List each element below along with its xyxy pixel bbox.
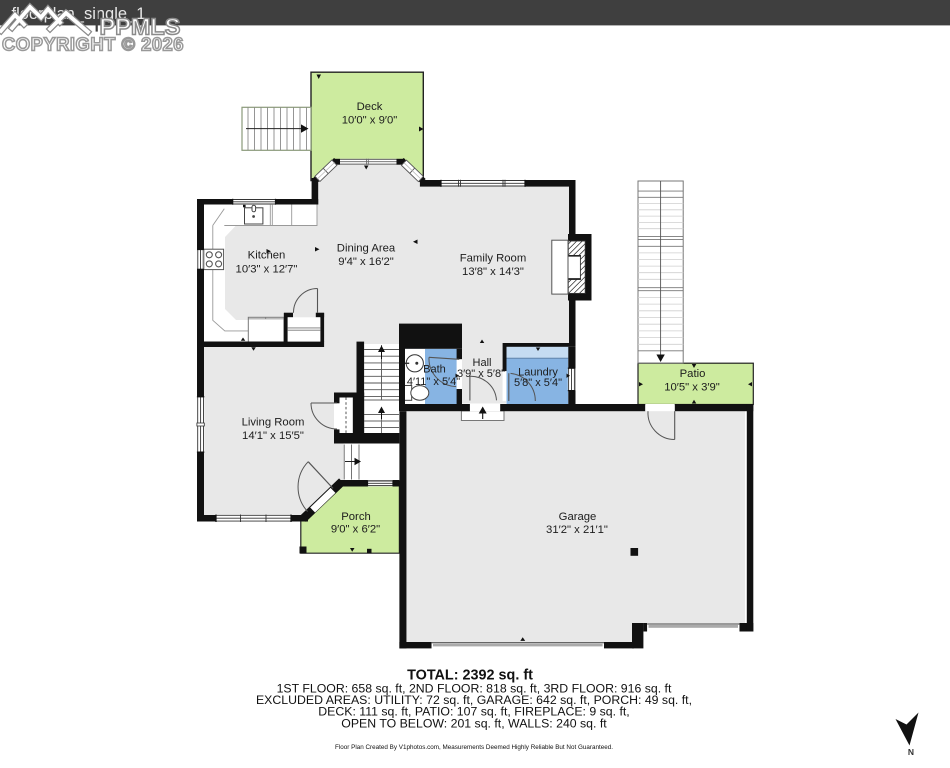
svg-text:Dining Area: Dining Area (337, 243, 396, 255)
svg-text:COPYRIGHT © 2026: COPYRIGHT © 2026 (2, 33, 184, 54)
svg-text:14′1" x 15′5": 14′1" x 15′5" (242, 430, 304, 442)
svg-text:4′11" x 5′4": 4′11" x 5′4" (407, 376, 460, 388)
svg-text:Garage: Garage (559, 511, 597, 523)
svg-text:9′0" x 6′2": 9′0" x 6′2" (331, 524, 380, 536)
svg-text:Porch: Porch (341, 511, 371, 523)
svg-text:Bath: Bath (423, 364, 446, 376)
svg-text:OPEN TO BELOW: 201 sq. ft, WAL: OPEN TO BELOW: 201 sq. ft, WALLS: 240 sq… (341, 716, 607, 730)
svg-text:10′5" x 3′9": 10′5" x 3′9" (664, 382, 720, 394)
svg-text:9′4" x 16′2": 9′4" x 16′2" (338, 256, 394, 268)
svg-text:N: N (908, 747, 914, 757)
svg-text:10′3" x 12′7": 10′3" x 12′7" (236, 264, 298, 276)
svg-text:3′9" x 5′8": 3′9" x 5′8" (457, 368, 505, 380)
svg-text:Kitchen: Kitchen (248, 250, 286, 262)
svg-text:Family Room: Family Room (460, 253, 527, 265)
svg-text:10′0" x 9′0": 10′0" x 9′0" (342, 115, 398, 127)
svg-text:Living Room: Living Room (242, 417, 305, 429)
svg-text:5′8" x 5′4": 5′8" x 5′4" (514, 377, 562, 389)
svg-text:13′8" x 14′3": 13′8" x 14′3" (462, 266, 524, 278)
svg-text:Patio: Patio (680, 368, 706, 380)
svg-text:Floor Plan Created By V1photos: Floor Plan Created By V1photos.com, Meas… (335, 744, 613, 751)
svg-text:Deck: Deck (357, 101, 383, 113)
svg-text:31′2" x 21′1": 31′2" x 21′1" (546, 524, 608, 536)
